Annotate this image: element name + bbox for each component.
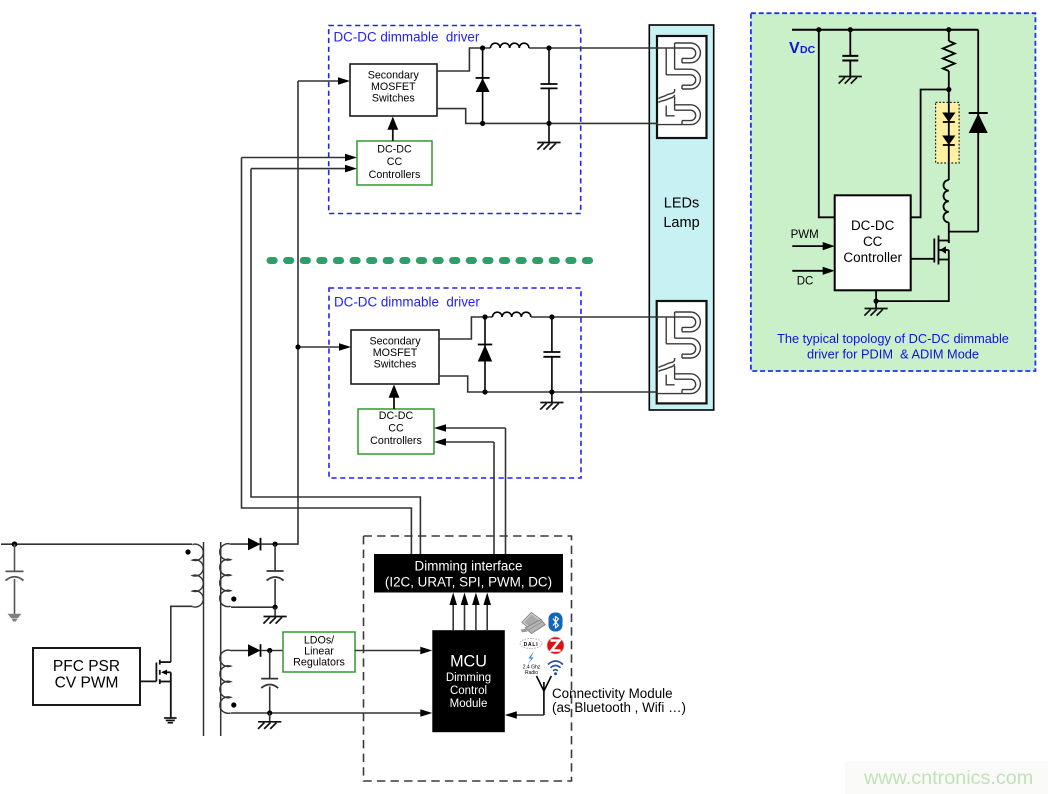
svg-text:LEDs: LEDs [664, 196, 699, 212]
svg-text:MOSFET: MOSFET [373, 347, 418, 359]
svg-text:CC: CC [388, 423, 404, 435]
svg-text:Lamp: Lamp [663, 215, 699, 231]
svg-text:MOSFET: MOSFET [371, 81, 416, 93]
svg-text:Module: Module [450, 698, 488, 710]
svg-text:DC: DC [800, 44, 816, 56]
svg-text:The typical topology of DC-DC: The typical topology of DC-DC dimmable [777, 331, 1009, 346]
svg-text:DC-DC dimmable driver: DC-DC dimmable driver [334, 295, 480, 310]
svg-text:CV PWM: CV PWM [55, 675, 119, 692]
svg-text:Radio: Radio [525, 670, 538, 676]
svg-text:Dimming: Dimming [446, 672, 491, 684]
svg-text:www.cntronics.com: www.cntronics.com [863, 767, 1033, 789]
svg-text:Secondary: Secondary [369, 336, 421, 348]
svg-text:Connectivity Module: Connectivity Module [552, 686, 673, 701]
svg-text:Controller: Controller [843, 250, 902, 265]
svg-text:Switches: Switches [372, 93, 415, 105]
svg-text:Secondary: Secondary [368, 70, 420, 82]
svg-text:DC-DC: DC-DC [379, 410, 414, 422]
svg-text:(I2C, URAT, SPI, PWM, DC): (I2C, URAT, SPI, PWM, DC) [385, 575, 552, 590]
svg-text:DALI: DALI [524, 642, 539, 648]
svg-text:driver for PDIM & ADIM Mode: driver for PDIM & ADIM Mode [807, 347, 979, 362]
svg-text:DC-DC: DC-DC [851, 218, 895, 233]
svg-text:DC-DC dimmable driver: DC-DC dimmable driver [334, 30, 480, 45]
svg-text:(as Bluetooth , Wifi …): (as Bluetooth , Wifi …) [552, 700, 686, 715]
svg-text:Regulators: Regulators [293, 657, 345, 669]
svg-text:Switches: Switches [374, 359, 417, 371]
svg-text:DC-DC: DC-DC [377, 144, 412, 156]
svg-text:PFC PSR: PFC PSR [53, 658, 120, 675]
svg-text:Control: Control [450, 685, 487, 697]
svg-text:PWM: PWM [791, 229, 819, 241]
svg-text:MCU: MCU [450, 653, 487, 671]
svg-text:Controllers: Controllers [369, 169, 421, 181]
svg-text:DC: DC [797, 276, 814, 288]
svg-text:CC: CC [387, 156, 403, 168]
svg-text:Dimming interface: Dimming interface [415, 559, 523, 574]
svg-text:V: V [789, 40, 800, 57]
svg-text:Controllers: Controllers [370, 435, 422, 447]
svg-text:CC: CC [863, 234, 883, 249]
